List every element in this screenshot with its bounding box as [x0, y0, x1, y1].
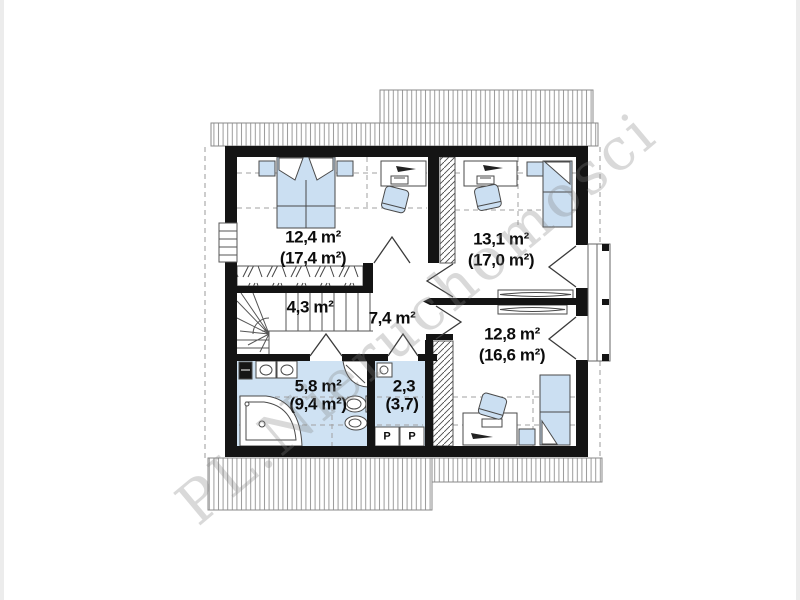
room-label-bedroom-2-total: (17,0 m²) [468, 252, 534, 269]
bidet [345, 416, 367, 430]
door-balcony-upper [549, 246, 576, 287]
door-bathroom [310, 334, 342, 356]
shaft-upper [440, 157, 455, 263]
chair [474, 184, 502, 211]
window [219, 223, 237, 262]
nightstand [337, 161, 353, 176]
chair [381, 185, 410, 213]
room-label-bedroom-1-total: (17,4 m²) [280, 250, 346, 267]
balcony-window-unit [588, 244, 610, 361]
wardrobe [498, 305, 567, 314]
room-label-bedroom-2-area: 13,1 m² [473, 231, 529, 248]
wardrobe [498, 290, 573, 299]
room-label-bathroom-area: 5,8 m² [295, 378, 342, 395]
door-balcony-lower [549, 317, 576, 359]
room-label-bedroom-3-total: (16,6 m²) [479, 347, 545, 364]
bedroom-3-furniture [463, 290, 573, 445]
single-bed [543, 161, 572, 227]
floor-plan-page: { "watermark": { "text": "PL.Nieruchomos… [0, 0, 800, 600]
room-label-wc-area: 2,3 [393, 378, 415, 395]
room-label-staircase-area: 4,3 m² [287, 299, 334, 316]
washbasin [277, 361, 297, 378]
double-bed [277, 157, 335, 228]
room-label-wc-total: (3,7) [386, 396, 419, 413]
room-label-bedroom-1-area: 12,4 m² [285, 229, 341, 246]
washbasin [377, 363, 392, 377]
desk [464, 161, 517, 186]
single-bed [540, 375, 570, 445]
room-label-hall-area: 7,4 m² [369, 310, 416, 327]
door-wc [388, 334, 418, 356]
nightstand [519, 429, 535, 445]
washer-label: P [383, 432, 390, 443]
washbasin [256, 361, 276, 378]
desk [381, 161, 426, 186]
desk [463, 413, 517, 445]
room-label-bathroom-total: (9,4 m²) [289, 396, 346, 413]
nightstand [259, 161, 275, 176]
door-bedroom-2 [427, 264, 453, 297]
low-ceiling-strip [237, 266, 363, 286]
washer-label: P [408, 432, 415, 443]
room-label-bedroom-3-area: 12,8 m² [484, 326, 540, 343]
nightstand [527, 162, 543, 176]
bedroom-1-furniture [259, 157, 426, 228]
door-bedroom-1 [374, 237, 410, 263]
floor-plan-svg [0, 0, 800, 600]
